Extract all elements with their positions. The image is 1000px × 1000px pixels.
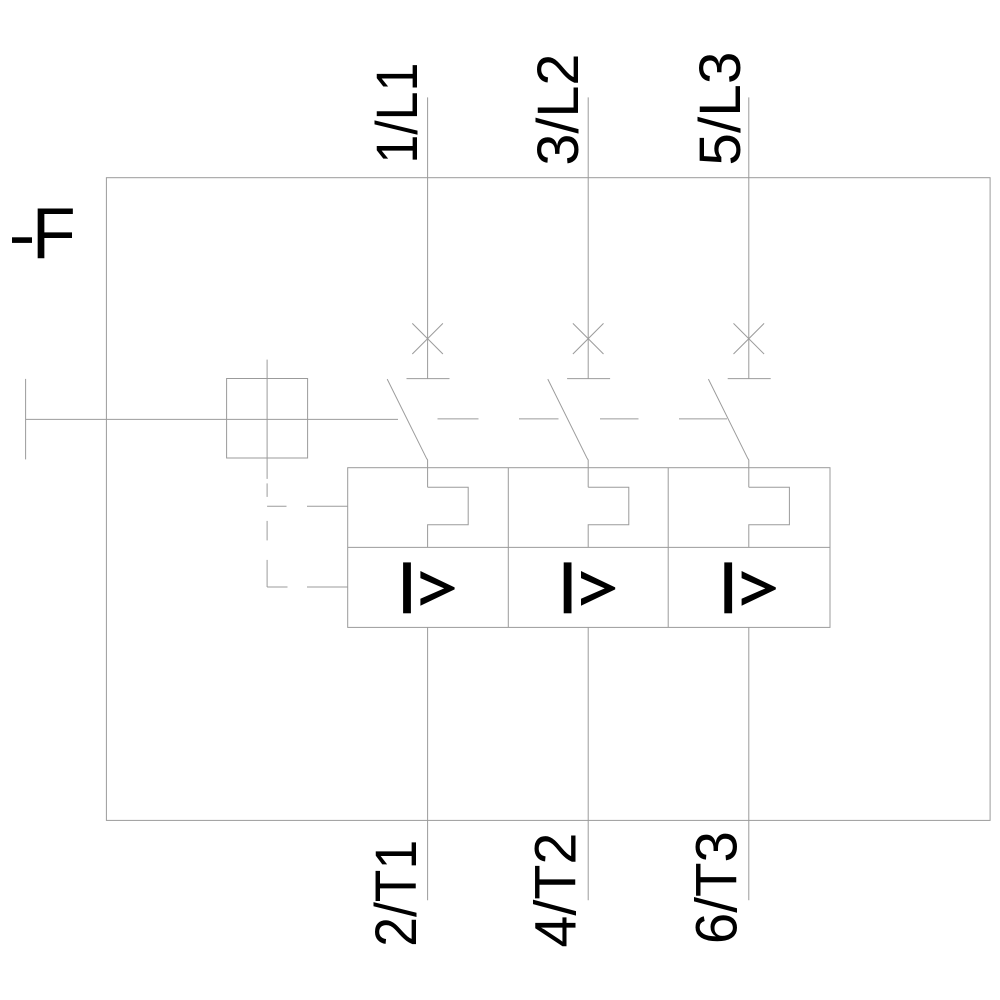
svg-text:1/L1: 1/L1 — [365, 63, 430, 164]
svg-text:5/L3: 5/L3 — [688, 52, 753, 166]
svg-text:3/L2: 3/L2 — [526, 54, 591, 166]
svg-text:F: F — [32, 194, 76, 274]
svg-text:4/T2: 4/T2 — [524, 833, 589, 948]
svg-text:2/T1: 2/T1 — [364, 840, 429, 947]
svg-text:6/T3: 6/T3 — [685, 831, 750, 944]
